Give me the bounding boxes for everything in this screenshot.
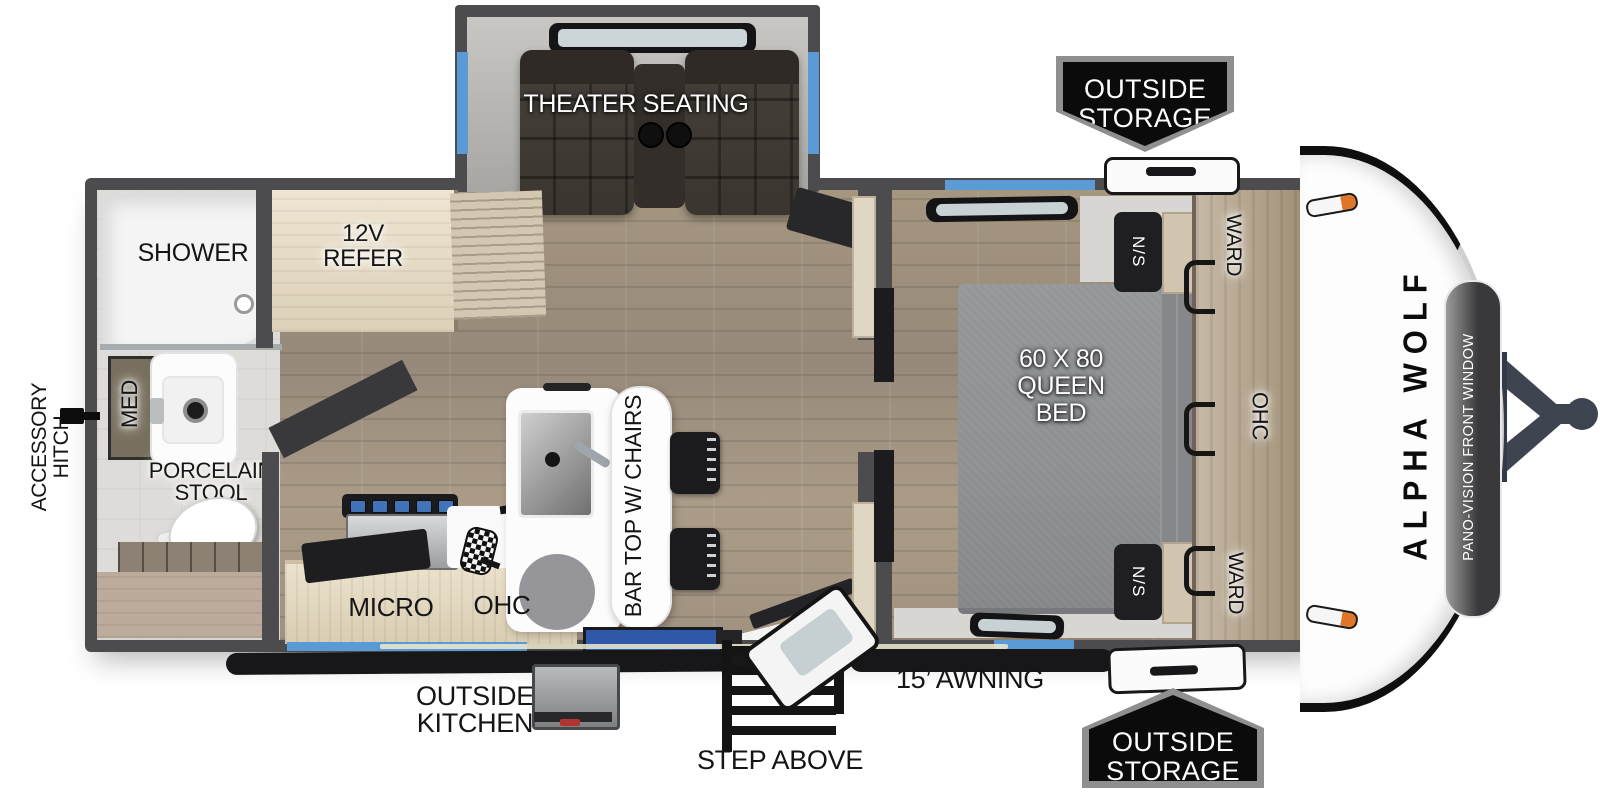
bedroom-window-glass-top xyxy=(936,202,1068,216)
ohc-bedroom-label: OHC xyxy=(1244,376,1276,456)
ohc-kitchen-label: OHC xyxy=(462,592,542,619)
awning-roller-left xyxy=(226,649,786,675)
refer-line1: 12V xyxy=(342,220,384,247)
bar-chair-back xyxy=(707,534,716,584)
accessory-hitch-line1: ACCESSORY xyxy=(28,383,51,512)
refer-line2: REFER xyxy=(323,245,403,272)
pantry-cabinet xyxy=(450,190,546,319)
theater-seat-right xyxy=(685,50,799,215)
shower-drain xyxy=(234,294,254,314)
pano-vision-label: PANO-VISION FRONT WINDOW xyxy=(1462,282,1480,612)
badge-fill: OUTSIDESTORAGE xyxy=(1089,695,1257,781)
cabinet-handle xyxy=(1184,260,1215,314)
slideout-window-right xyxy=(808,52,819,154)
baggage-door-top xyxy=(1104,157,1240,195)
badge-fill: OUTSIDESTORAGE xyxy=(1063,62,1227,146)
entry-door-window xyxy=(778,607,855,678)
accessory-hitch-label: ACCESSORYHITCH xyxy=(29,362,75,532)
storage-line1: OUTSIDE xyxy=(1112,727,1234,757)
shower-door-track xyxy=(100,344,282,350)
accessory-hitch-stem xyxy=(84,412,100,420)
storage-line2: STORAGE xyxy=(1078,103,1212,133)
outside-storage-badge-top: OUTSIDESTORAGE xyxy=(1056,56,1234,152)
outside-storage-badge-bottom: OUTSIDESTORAGE xyxy=(1082,688,1264,788)
stove-burner xyxy=(350,500,366,513)
stove-burner xyxy=(372,500,388,513)
bedroom-window-top xyxy=(945,180,1095,190)
nightstand-bottom: N/S xyxy=(1114,544,1162,620)
wardrobe-label-bottom: WARD xyxy=(1220,548,1250,618)
step-rail xyxy=(722,640,732,752)
step-rung xyxy=(730,726,836,735)
doorway-jamb-top xyxy=(874,288,894,382)
baggage-door-handle xyxy=(1146,167,1196,176)
baggage-door-handle xyxy=(1150,665,1198,676)
bed-line2: QUEEN xyxy=(1017,372,1104,400)
outside-kitchen-line1: OUTSIDE xyxy=(416,681,534,711)
shower-label: SHOWER xyxy=(118,240,268,266)
brand-label: ALPHA WOLF xyxy=(1398,243,1443,583)
wardrobe-label-top: WARD xyxy=(1218,210,1248,280)
step-above-label: STEP ABOVE xyxy=(690,746,870,774)
cupholder xyxy=(666,122,692,148)
accessory-hitch-receiver xyxy=(60,408,84,424)
theater-seating-label: THEATER SEATING xyxy=(486,91,786,117)
awning-label: 15’ AWNING xyxy=(885,665,1055,693)
outside-kitchen-latch xyxy=(560,719,580,726)
bathroom-faucet xyxy=(150,398,164,424)
nightstand-label: N/S xyxy=(1114,212,1162,292)
cupholder xyxy=(638,122,664,148)
doorway-jamb-bottom xyxy=(874,450,894,562)
nightstand-label: N/S xyxy=(1114,544,1162,620)
accessory-hitch-line2: HITCH xyxy=(50,416,73,479)
bar-top-label: BAR TOP W/ CHAIRS xyxy=(621,388,657,624)
bathroom-wall-lower xyxy=(262,452,279,640)
bed-line1: 60 X 80 xyxy=(1019,345,1103,373)
towel-bar xyxy=(543,383,591,391)
bathroom-bench xyxy=(97,572,267,638)
slideout-window-left xyxy=(457,52,468,154)
micro-label: MICRO xyxy=(336,594,446,621)
refer-label: 12V REFER xyxy=(288,221,438,271)
nightstand-top: N/S xyxy=(1114,212,1162,292)
storage-line2: STORAGE xyxy=(1106,756,1240,786)
bedroom-wall-upper-face xyxy=(852,196,876,338)
queen-bed-label: 60 X 80QUEENBED xyxy=(996,346,1126,427)
rv-floorplan: THEATER SEATING SHOWER MED PORCELAIN STO… xyxy=(0,0,1600,803)
storage-line1: OUTSIDE xyxy=(1084,74,1206,104)
kitchen-sink-drain xyxy=(545,452,560,467)
bathroom-sink-drain xyxy=(183,398,208,423)
outside-kitchen-line2: KITCHEN xyxy=(417,708,533,738)
slideout-window-glass xyxy=(558,29,747,47)
bathroom-step-slats xyxy=(118,542,266,574)
bathroom-wall-upper xyxy=(256,190,273,348)
bar-chair-back xyxy=(707,438,716,488)
stove-burner xyxy=(394,500,410,513)
cabinet-handle xyxy=(1184,546,1215,596)
hitch-ball xyxy=(1566,398,1598,430)
cabinet-handle xyxy=(1184,402,1215,456)
stove-burner xyxy=(416,500,432,513)
bed-line3: BED xyxy=(1036,399,1087,427)
